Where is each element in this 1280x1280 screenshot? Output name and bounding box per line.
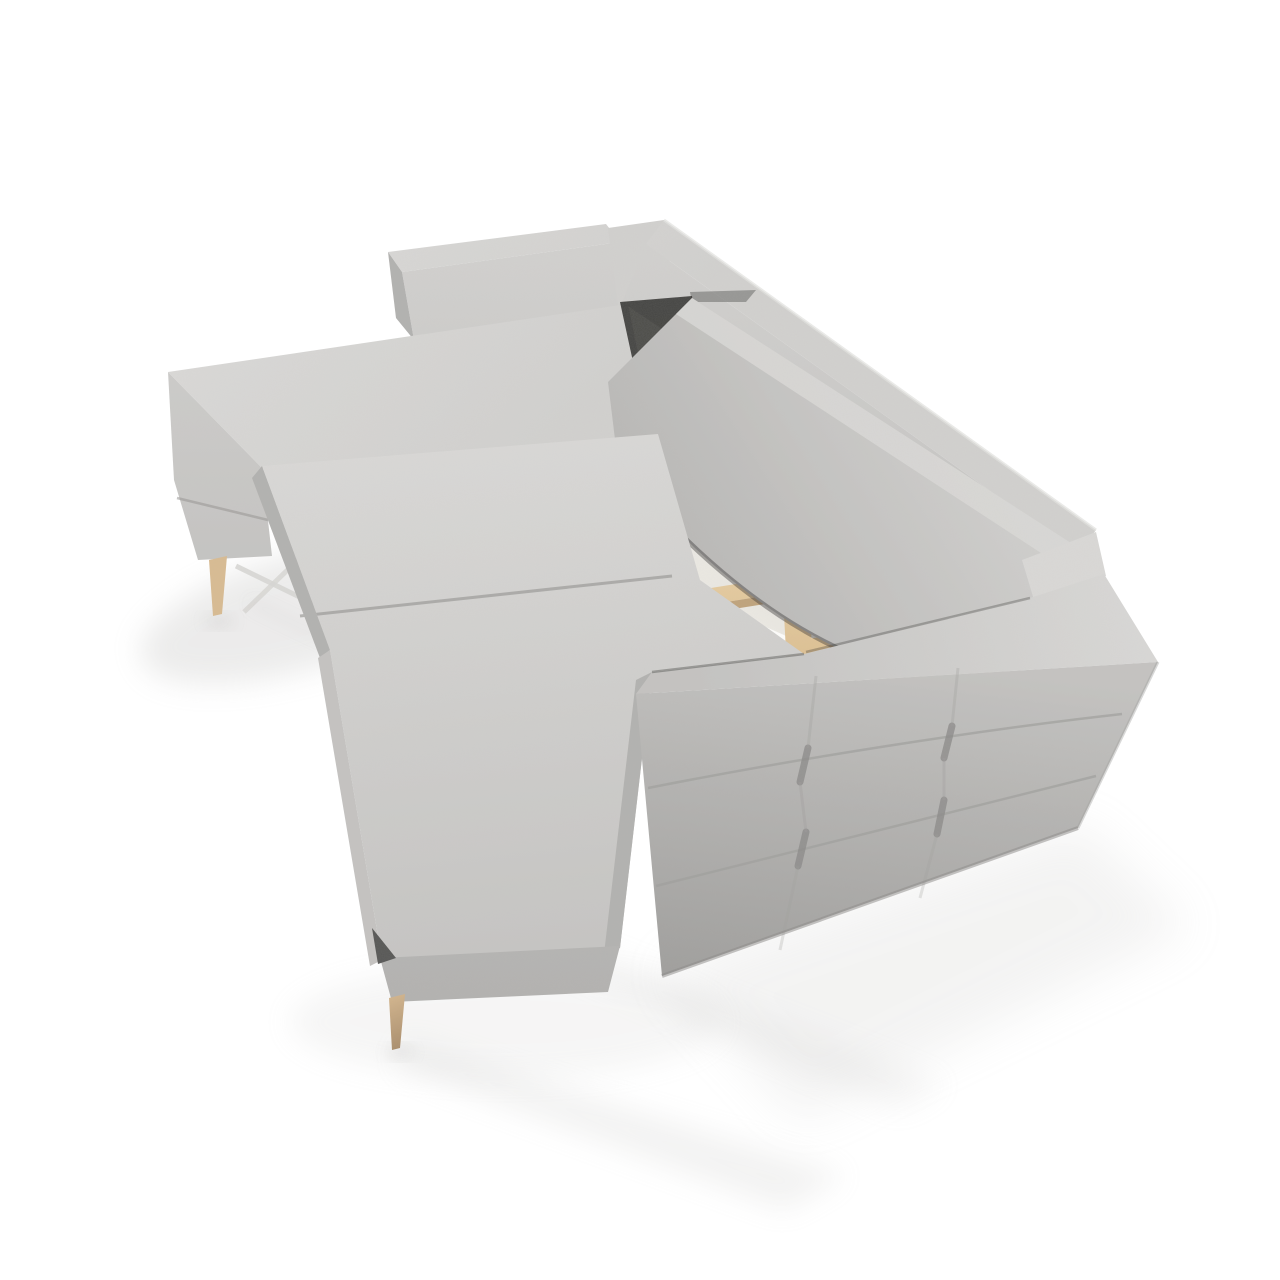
bed-leg-shadow bbox=[386, 1047, 414, 1057]
chaise-leg-shadow bbox=[204, 616, 234, 626]
product-photo-sofa-bed bbox=[0, 0, 1280, 1280]
sofa-illustration bbox=[0, 0, 1280, 1280]
rail-cushion-gap-shadow bbox=[690, 290, 756, 302]
